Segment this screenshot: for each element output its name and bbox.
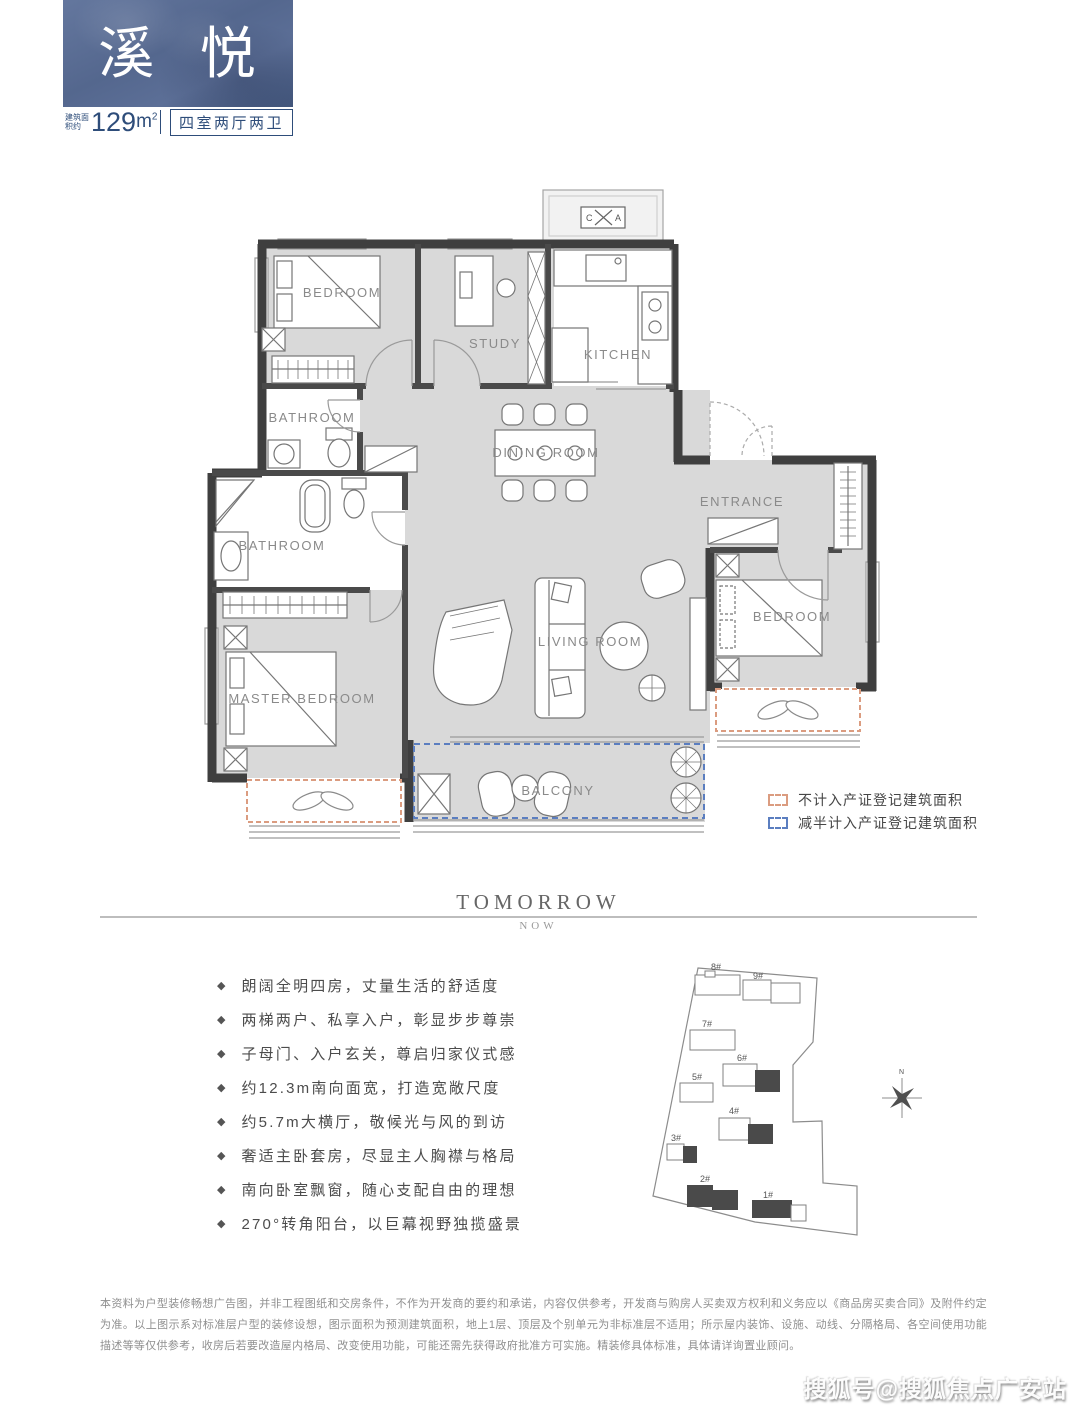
area-unit: m2 — [136, 111, 157, 133]
ac-platform — [543, 190, 663, 242]
compass-icon: N — [882, 1069, 922, 1118]
plan-legend: 不计入产证登记建筑面积 减半计入产证登记建筑面积 — [768, 791, 978, 837]
diamond-bullet-icon: ◆ — [217, 979, 225, 992]
floor-lamp — [639, 675, 665, 701]
ac-letter-c: C — [586, 213, 593, 223]
label-kitchen: KITCHEN — [584, 347, 652, 362]
diamond-bullet-icon: ◆ — [217, 1047, 225, 1060]
label-bldg-8: 8# — [711, 962, 721, 972]
diamond-bullet-icon: ◆ — [217, 1081, 225, 1094]
unit-spec-strip: 建筑面积约 129 m2 四室两厅两卫 — [63, 107, 293, 137]
compass-north-label: N — [899, 1069, 904, 1076]
diamond-bullet-icon: ◆ — [217, 1115, 225, 1128]
label-bathroom-lower: BATHROOM — [239, 538, 326, 553]
bay-window-right — [716, 689, 860, 731]
label-bldg-5: 5# — [692, 1072, 702, 1082]
divider-word-now: NOW — [100, 920, 977, 932]
site-plan: 8# 9# 7# 6# 5# 4# 3# 2# 1# N — [645, 950, 935, 1260]
area-label: 建筑面积约 — [65, 113, 91, 131]
feature-item: ◆奢适主卧套房，尽显主人胸襟与格局 — [217, 1138, 522, 1172]
entry-double-door — [710, 402, 772, 456]
legend-label-half: 减半计入产证登记建筑面积 — [798, 813, 978, 833]
label-bedroom-top: BEDROOM — [303, 285, 381, 300]
label-entrance: ENTRANCE — [700, 494, 784, 509]
project-title: 溪 悦 — [63, 0, 293, 107]
watermark-text: 搜狐号@搜狐焦点广安站 — [804, 1370, 1067, 1404]
diamond-bullet-icon: ◆ — [217, 1013, 225, 1026]
feature-item: ◆两梯两户、私享入户，彰显步步尊崇 — [217, 1002, 522, 1036]
label-master: MASTER BEDROOM — [228, 691, 375, 706]
floorplan-drawing: C A — [150, 160, 910, 860]
area-cell: 建筑面积约 129 m2 — [63, 108, 160, 136]
label-bldg-4: 4# — [729, 1106, 739, 1116]
wardrobe-top-bedroom — [272, 356, 354, 383]
shoe-cabinet — [708, 518, 778, 544]
legend-label-excluded: 不计入产证登记建筑面积 — [798, 790, 963, 810]
feature-item: ◆约12.3m南向面宽，打造宽敞尺度 — [217, 1070, 522, 1104]
label-balcony: BALCONY — [521, 783, 594, 798]
diamond-bullet-icon: ◆ — [217, 1149, 225, 1162]
label-study: STUDY — [469, 336, 521, 351]
tv-console — [690, 598, 706, 710]
ac-letter-a: A — [615, 213, 621, 223]
label-bldg-3: 3# — [671, 1133, 681, 1143]
area-value: 129 — [91, 108, 136, 136]
study-bookshelf — [528, 252, 545, 384]
entry-closet — [834, 463, 862, 549]
project-title-badge: 溪 悦 — [63, 0, 293, 107]
divider-line — [100, 916, 977, 918]
label-bldg-9: 9# — [753, 971, 763, 981]
strip-divider — [160, 110, 161, 134]
feature-item: ◆约5.7m大横厅，敬候光与风的到访 — [217, 1104, 522, 1138]
brand-divider: TOMORROW NOW — [100, 890, 977, 932]
label-bldg-2: 2# — [700, 1174, 710, 1184]
feature-item: ◆270°转角阳台，以巨幕视野独揽盛景 — [217, 1206, 522, 1240]
label-living: LIVING ROOM — [538, 634, 642, 649]
label-bldg-7: 7# — [702, 1019, 712, 1029]
diamond-bullet-icon: ◆ — [217, 1217, 225, 1230]
feature-item: ◆朗阔全明四房，丈量生活的舒适度 — [217, 968, 522, 1002]
label-bldg-1: 1# — [763, 1190, 773, 1200]
legend-swatch-blue — [768, 817, 788, 829]
legend-row-excluded: 不计入产证登记建筑面积 — [768, 791, 978, 809]
area-exponent: 2 — [152, 112, 158, 123]
legend-row-half: 减半计入产证登记建筑面积 — [768, 814, 978, 832]
label-bathroom-upper: BATHROOM — [269, 410, 356, 425]
hall-console — [365, 446, 417, 472]
disclaimer-text: 本资料为户型装修畅想广告图，并非工程图纸和交房条件，不作为开发商的要约和承诺，内… — [100, 1294, 987, 1357]
feature-list: ◆朗阔全明四房，丈量生活的舒适度 ◆两梯两户、私享入户，彰显步步尊崇 ◆子母门、… — [217, 968, 522, 1240]
master-wardrobe — [223, 592, 347, 618]
label-bedroom-right: BEDROOM — [753, 609, 831, 624]
divider-word-tomorrow: TOMORROW — [100, 890, 977, 915]
layout-spec: 四室两厅两卫 — [170, 109, 293, 136]
label-bldg-6: 6# — [737, 1053, 747, 1063]
diamond-bullet-icon: ◆ — [217, 1183, 225, 1196]
legend-swatch-orange — [768, 794, 788, 806]
feature-item: ◆子母门、入户玄关，尊启归家仪式感 — [217, 1036, 522, 1070]
feature-item: ◆南向卧室飘窗，随心支配自由的理想 — [217, 1172, 522, 1206]
label-dining: DINING ROOM — [492, 445, 599, 460]
